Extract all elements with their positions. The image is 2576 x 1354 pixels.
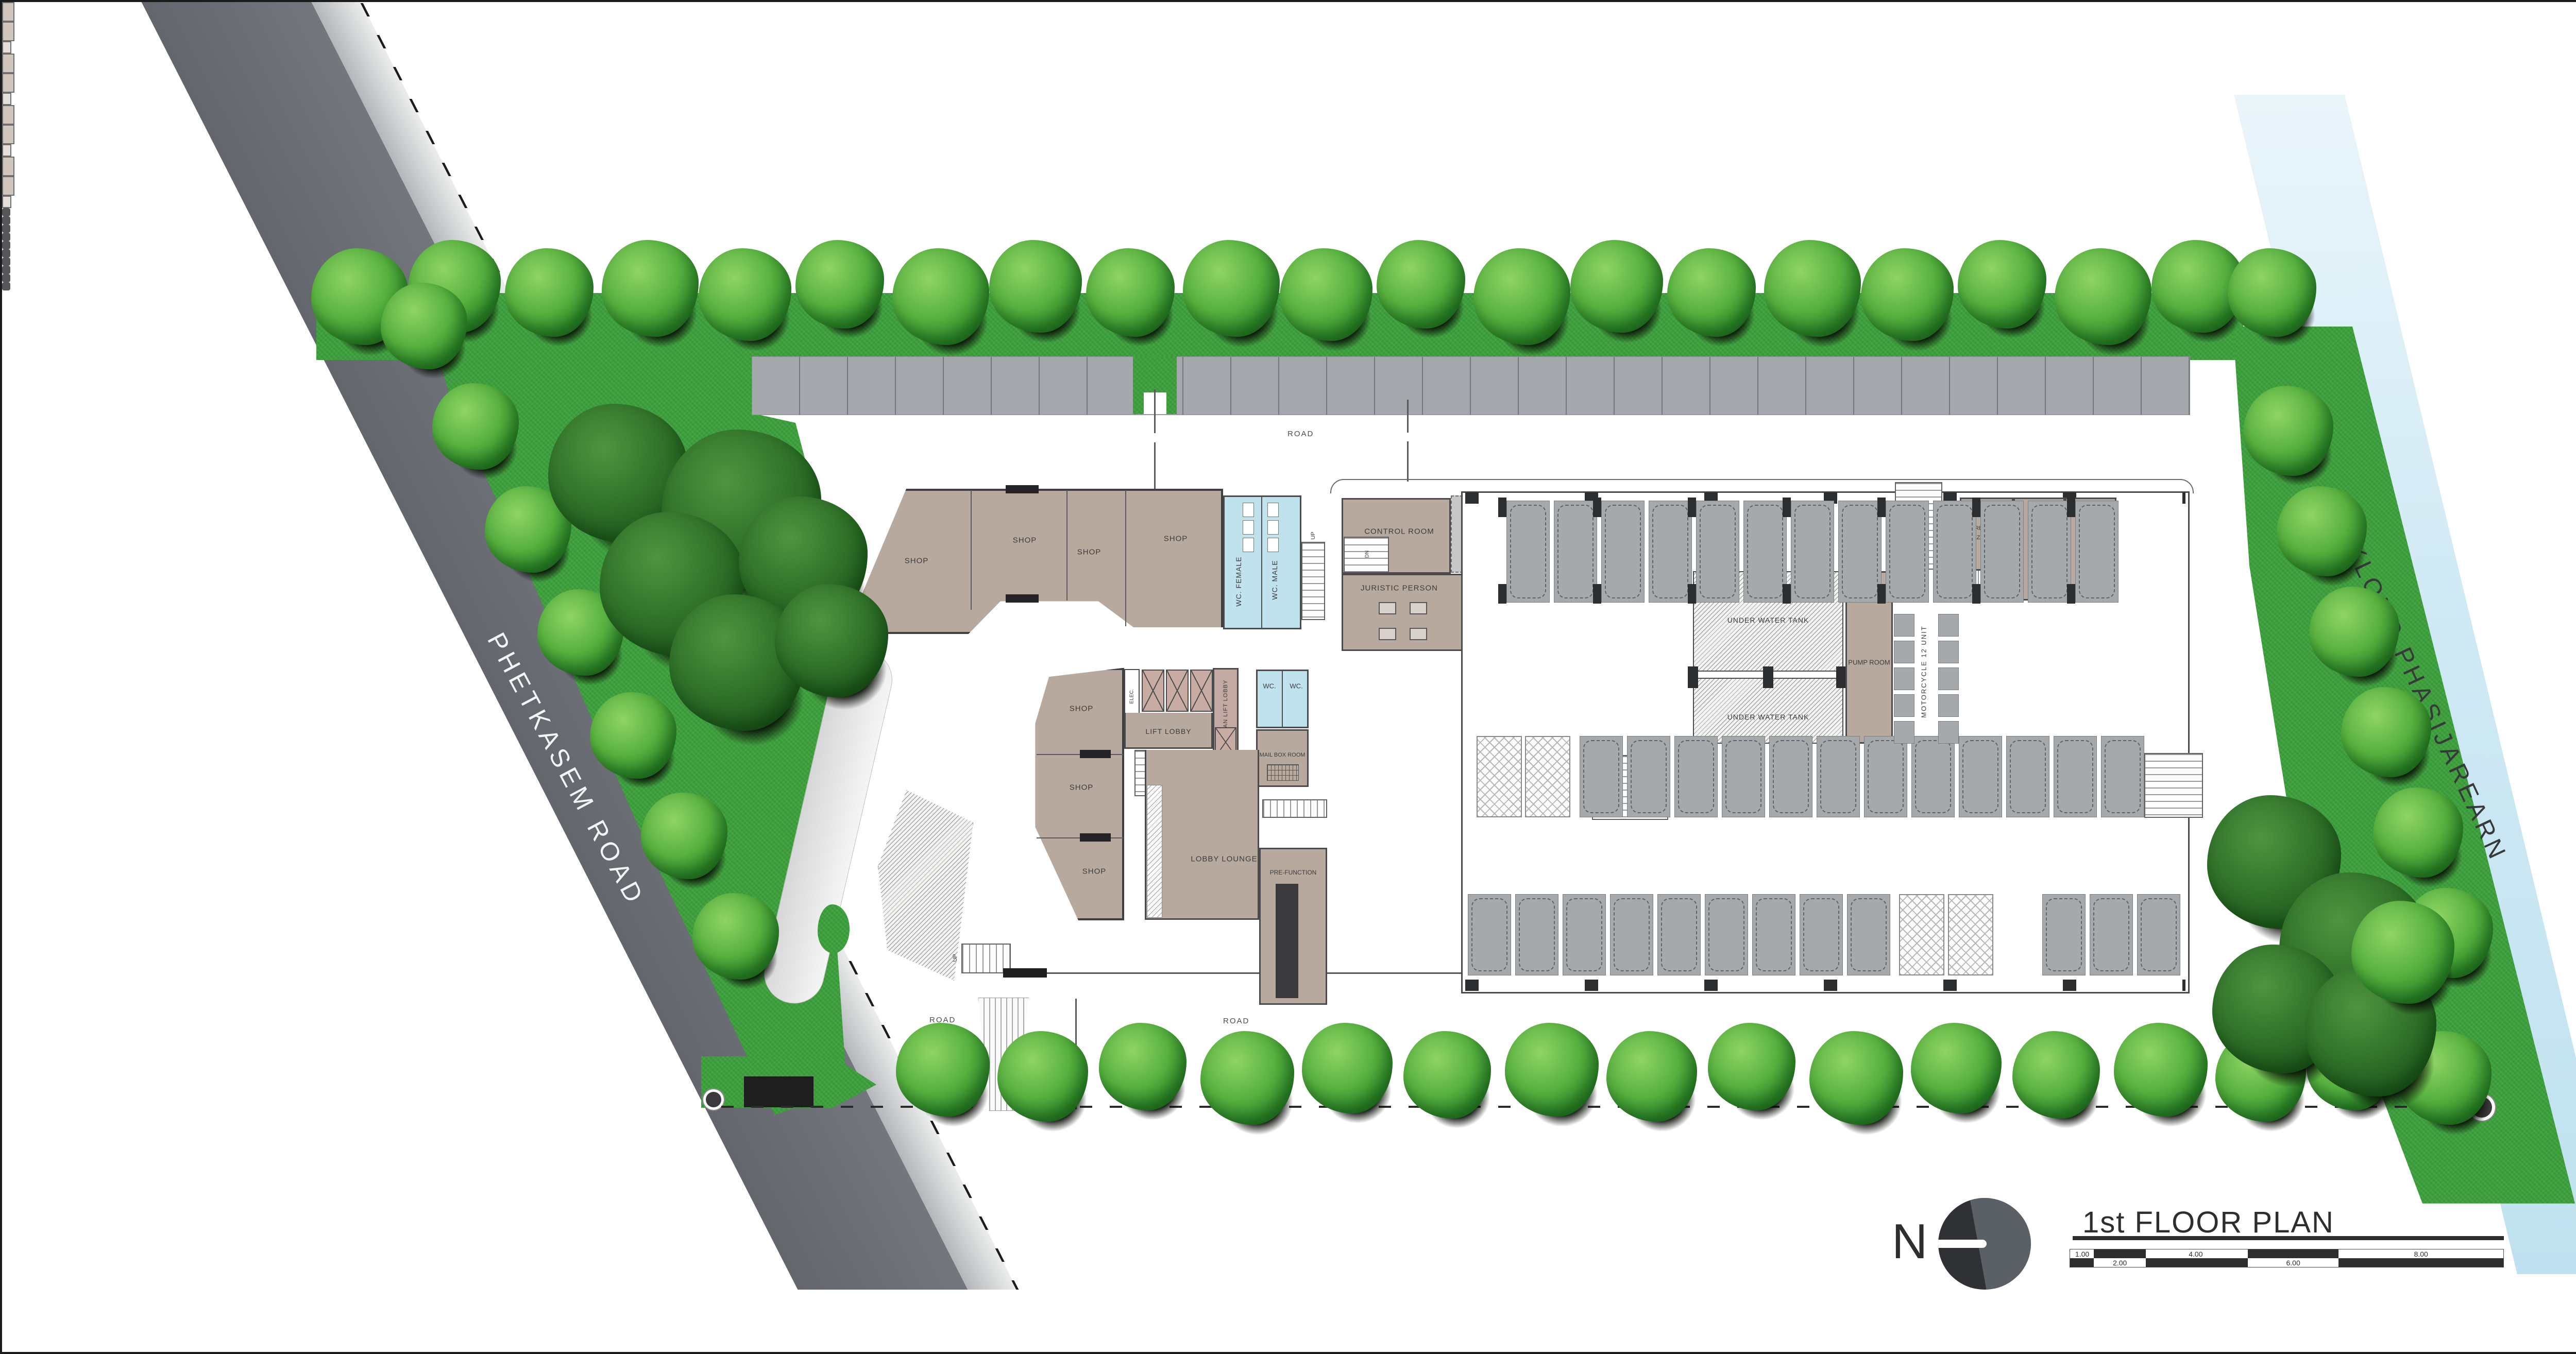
tree — [1280, 248, 1372, 341]
survey-line-a1 — [1154, 389, 1156, 433]
door-threshold — [1006, 485, 1039, 493]
car-outline — [1889, 505, 1925, 598]
lift-lobby-label: LIFT LOBBY — [1145, 727, 1191, 735]
chair — [2, 258, 10, 266]
tree-canopy — [2055, 248, 2151, 345]
parking-stall — [2090, 894, 2133, 975]
car-outline — [1678, 740, 1714, 813]
tree-canopy — [699, 248, 791, 341]
sofa — [2, 73, 14, 93]
tree — [1958, 240, 2046, 329]
parking-stall — [1911, 736, 1955, 817]
tree-canopy — [2277, 486, 2367, 576]
scale-label-4: 4.00 — [2189, 1250, 2202, 1258]
shop-label: SHOP — [1070, 783, 1094, 792]
wc-label: WC. — [1263, 682, 1276, 690]
motorcycle-stall — [1894, 694, 1914, 717]
chair — [2, 225, 10, 233]
tree-canopy — [1861, 248, 1954, 341]
car-outline — [1915, 740, 1951, 813]
parking-stall — [1959, 736, 2002, 817]
car-outline — [1842, 505, 1878, 598]
car-outline — [1803, 898, 1839, 971]
lift-2 — [1166, 670, 1189, 712]
tree — [1403, 1031, 1491, 1119]
wc-fixture — [1267, 520, 1279, 535]
column — [1688, 498, 1696, 517]
sofa — [2, 125, 14, 144]
car-outline — [1605, 505, 1641, 598]
column — [2067, 584, 2075, 604]
tree — [2243, 386, 2333, 476]
entrance-plaza — [878, 790, 973, 981]
column — [1763, 666, 1773, 688]
car-outline — [1566, 898, 1602, 971]
tree-canopy — [2341, 687, 2431, 777]
tree-canopy — [2309, 587, 2399, 677]
tree-canopy — [1377, 240, 1465, 329]
tree — [2373, 787, 2463, 878]
tree — [1667, 248, 1756, 337]
tree — [775, 584, 888, 697]
parking-stall — [2137, 894, 2180, 975]
mail-box-room-label: MAIL BOX ROOM — [1260, 752, 1306, 758]
sofa — [2, 176, 14, 196]
car-outline — [1868, 740, 1904, 813]
parking-stall — [2006, 736, 2049, 817]
tree — [1086, 248, 1175, 337]
parking-stall — [1601, 501, 1645, 603]
column — [1498, 584, 1506, 604]
parking-stall — [1657, 894, 1701, 975]
shop-divider — [971, 490, 972, 610]
wc-fixture — [1267, 538, 1279, 552]
tree — [2277, 486, 2367, 576]
tree — [2351, 901, 2454, 1004]
sofa — [2, 2, 14, 22]
lift-1 — [1142, 670, 1164, 712]
tree-canopy — [1280, 248, 1372, 341]
column — [1593, 584, 1601, 604]
desk — [1410, 602, 1427, 614]
tree — [1183, 240, 1280, 337]
car-outline — [1794, 505, 1831, 598]
scale-label-1: 1.00 — [2075, 1250, 2089, 1258]
scale-seg — [2248, 1249, 2339, 1258]
car-outline — [1471, 898, 1507, 971]
parking-stall — [1933, 501, 1976, 603]
car-outline — [1756, 898, 1792, 971]
car-outline — [2031, 505, 2067, 598]
lobby-lounge-label: LOBBY LOUNGE — [1191, 855, 1257, 864]
car-outline — [1700, 505, 1736, 598]
scale-label-8: 8.00 — [2414, 1250, 2428, 1258]
car-outline — [2046, 898, 2082, 971]
floor-plan-canvas: UP SHOP SHOP SHOP SHOP WC. FEMALE WC. MA… — [0, 0, 2576, 1354]
shop-label: SHOP — [1013, 536, 1037, 545]
shop-label: SHOP — [1070, 705, 1094, 713]
tree — [590, 692, 676, 779]
column — [2067, 498, 2075, 517]
door-threshold — [1006, 594, 1039, 603]
tree — [1377, 240, 1465, 329]
tree — [699, 248, 791, 341]
car-outline — [1937, 505, 1973, 598]
motorcycle-stall — [1894, 721, 1914, 744]
car-outline — [1652, 505, 1688, 598]
sofa — [2, 105, 14, 125]
tree — [2341, 687, 2431, 777]
tree-canopy — [1809, 1031, 1903, 1125]
tree-canopy — [1086, 248, 1175, 337]
tree-canopy — [590, 692, 676, 779]
parking-stall — [1722, 736, 1765, 817]
wc-label: WC. — [1290, 682, 1302, 690]
tree — [1302, 1023, 1393, 1113]
car-outline — [2141, 898, 2177, 971]
tree — [1505, 1023, 1599, 1117]
garage-column-band-bottom — [1465, 980, 2185, 991]
canopy-line — [1047, 972, 1462, 974]
tree — [1473, 248, 1570, 345]
tree-canopy — [1099, 1023, 1187, 1110]
coffee-table — [2, 41, 11, 54]
canopy-block — [1003, 968, 1047, 978]
scale-seg — [2094, 1249, 2146, 1258]
chair — [2, 241, 10, 249]
shop-label: SHOP — [1164, 535, 1188, 543]
column — [1688, 666, 1698, 688]
parking-stall — [1627, 736, 1670, 817]
tree-canopy — [1708, 1023, 1795, 1110]
coffee-table — [2, 196, 11, 208]
motorcycle-stall — [1938, 641, 1959, 663]
column — [1877, 584, 1886, 604]
parking-stall — [2054, 736, 2097, 817]
control-room-label: CONTROL ROOM — [1364, 527, 1434, 536]
parking-stall — [2042, 894, 2086, 975]
tree-canopy — [2243, 386, 2333, 476]
parking-stall — [1791, 501, 1834, 603]
scale-seg — [2070, 1258, 2094, 1267]
car-outline — [2079, 505, 2115, 598]
tree-canopy — [2228, 248, 2316, 337]
tree — [1861, 248, 1954, 341]
tree-canopy — [1667, 248, 1756, 337]
column — [1688, 584, 1696, 604]
desk — [1379, 628, 1396, 640]
survey-line-b2 — [1407, 441, 1409, 482]
wc-fixture — [1267, 503, 1279, 517]
parking-stall — [1769, 736, 1812, 817]
tree-canopy — [2373, 787, 2463, 878]
parking-stall — [1886, 501, 1929, 603]
car-outline — [1519, 898, 1555, 971]
tree-canopy — [1505, 1023, 1599, 1117]
wc-fixture — [1243, 520, 1254, 535]
scale-seg — [2146, 1258, 2248, 1267]
tree — [381, 283, 467, 369]
parking-stall — [1705, 894, 1748, 975]
tree-canopy — [1403, 1031, 1491, 1119]
motorcycle-stall — [1894, 667, 1914, 690]
ramp-chevron — [1525, 736, 1570, 817]
parking-stall — [1838, 501, 1882, 603]
tree — [2309, 587, 2399, 677]
tree-canopy — [1570, 240, 1663, 333]
parking-stall — [1563, 894, 1606, 975]
car-outline — [1661, 898, 1697, 971]
desk — [1410, 628, 1427, 640]
column — [1498, 498, 1506, 517]
tree — [1606, 1031, 1697, 1122]
side-stair — [1262, 799, 1327, 818]
tree-canopy — [1473, 248, 1570, 345]
parking-stall — [2101, 736, 2144, 817]
sofa — [2, 22, 14, 41]
chair — [2, 233, 10, 241]
front-stair-up-label: UP — [1310, 532, 1316, 539]
shop-label: SHOP — [905, 557, 929, 565]
parking-stall — [2075, 501, 2119, 603]
chair — [2, 282, 10, 290]
column — [1783, 584, 1791, 604]
small-bush — [818, 904, 850, 953]
tree-canopy — [432, 383, 519, 470]
ramp-chevron — [1477, 736, 1522, 817]
plan-title: 1st FLOOR PLAN — [2082, 1205, 2334, 1240]
tree — [997, 1031, 1088, 1122]
parking-stall — [1610, 894, 1653, 975]
tree-canopy — [892, 248, 989, 345]
tree-canopy — [2012, 1031, 2100, 1119]
coffee-table — [2, 144, 11, 157]
car-outline — [1631, 740, 1667, 813]
title-underline — [2073, 1236, 2504, 1240]
under-water-tank-label: UNDER WATER TANK — [1727, 713, 1809, 721]
tree — [896, 1023, 990, 1117]
motorcycle-stall — [1938, 721, 1959, 744]
tree — [692, 893, 779, 980]
wc-male-label: WC. MALE — [1270, 560, 1279, 599]
tree-canopy — [1764, 240, 1861, 337]
tree — [432, 383, 519, 470]
road-label-top: ROAD — [1287, 430, 1314, 438]
parking-stall — [2028, 501, 2071, 603]
car-outline — [1851, 898, 1887, 971]
parking-stall — [1743, 501, 1787, 603]
under-water-tank-label: UNDER WATER TANK — [1727, 616, 1809, 624]
boundary-post-left — [706, 1092, 721, 1107]
wc-fixture — [1243, 538, 1254, 552]
lounge-walk-hatch — [1147, 785, 1162, 918]
motorcycle-stall — [1894, 641, 1914, 663]
parking-stall — [1674, 736, 1718, 817]
wc-divider — [1261, 496, 1262, 628]
pump-room-label: PUMP ROOM — [1848, 659, 1890, 666]
car-outline — [1820, 740, 1856, 813]
tree-canopy — [2351, 901, 2454, 1004]
tree-canopy — [1606, 1031, 1697, 1122]
survey-line-b1 — [1407, 400, 1409, 433]
tree-canopy — [896, 1023, 990, 1117]
motorcycle-stall — [1894, 614, 1914, 637]
car-outline — [1962, 740, 1998, 813]
column — [1836, 666, 1846, 688]
parking-stall — [1580, 736, 1623, 817]
tree — [892, 248, 989, 345]
car-outline — [1747, 505, 1783, 598]
column — [1877, 498, 1886, 517]
parking-stall — [1649, 501, 1692, 603]
tree — [602, 240, 699, 337]
wc-divider — [1282, 671, 1283, 727]
north-letter: N — [1892, 1213, 1927, 1270]
tree-canopy — [1200, 1031, 1294, 1125]
tree-canopy — [775, 584, 888, 697]
conference-table — [1276, 884, 1298, 998]
garage-stair-right — [2144, 753, 2203, 818]
shop-divider — [1125, 490, 1126, 626]
car-outline — [1557, 505, 1594, 598]
wc-fixture — [1243, 503, 1254, 517]
tree-canopy — [795, 240, 884, 329]
column — [1972, 584, 1980, 604]
tree — [2012, 1031, 2100, 1119]
tree — [505, 248, 594, 337]
car-outline — [1510, 505, 1546, 598]
car-outline — [1583, 740, 1619, 813]
scale-seg — [2338, 1258, 2503, 1267]
elec-label: ELEC. — [1129, 689, 1135, 704]
scale-label-6: 6.00 — [2286, 1259, 2300, 1267]
car-outline — [1725, 740, 1761, 813]
tree-canopy — [505, 248, 594, 337]
shop-label: SHOP — [1082, 867, 1107, 876]
tree — [1200, 1031, 1294, 1125]
column — [1783, 498, 1791, 517]
tree-canopy — [1911, 1023, 2002, 1113]
mail-boxes — [1267, 764, 1299, 781]
tree-canopy — [997, 1031, 1088, 1122]
wc-female-label: WC. FEMALE — [1234, 556, 1243, 606]
car-outline — [1708, 898, 1744, 971]
tree — [2055, 248, 2151, 345]
tree-canopy — [381, 283, 467, 369]
tree-canopy — [989, 240, 1082, 333]
scale-bar: 1.00 2.00 4.00 6.00 8.00 — [2070, 1249, 2504, 1267]
tree — [641, 793, 727, 879]
ramp-chevron — [1899, 894, 1944, 975]
car-outline — [1773, 740, 1809, 813]
shop-block-top — [842, 489, 1223, 634]
motorcycle-stall — [1938, 667, 1959, 690]
ramp-chevron — [1948, 894, 1993, 975]
tree — [795, 240, 884, 329]
car-outline — [2093, 898, 2129, 971]
coffee-table — [2, 93, 11, 105]
tree — [1911, 1023, 2002, 1113]
column — [1972, 498, 1980, 517]
parking-stall — [1980, 501, 2024, 603]
tree — [1099, 1023, 1187, 1110]
road-label-bottom-right: ROAD — [1223, 1017, 1249, 1025]
tree-canopy — [2114, 1023, 2208, 1117]
lift-3 — [1190, 670, 1213, 712]
tree — [1809, 1031, 1903, 1125]
sofa — [2, 157, 14, 176]
parking-stall — [1847, 894, 1890, 975]
car-outline — [1984, 505, 2020, 598]
chair — [2, 274, 10, 282]
tree — [1764, 240, 1861, 337]
north-compass-icon — [1938, 1198, 2031, 1290]
sofa — [2, 54, 14, 73]
parking-stall — [1554, 501, 1597, 603]
car-outline — [2010, 740, 2046, 813]
motorcycle-label: MOTORCYCLE 12 UNIT — [1920, 625, 1928, 718]
control-stair-dn-label: DN — [1365, 551, 1370, 558]
car-outline — [2105, 740, 2141, 813]
tree-canopy — [692, 893, 779, 980]
car-outline — [2057, 740, 2093, 813]
door-threshold — [1080, 750, 1111, 758]
motorcycle-stall — [1938, 614, 1959, 637]
parking-stall — [1817, 736, 1860, 817]
tree — [989, 240, 1082, 333]
door-threshold — [1080, 833, 1111, 842]
pre-function-label: PRE-FUNCTION — [1270, 869, 1317, 876]
parking-stall — [1506, 501, 1550, 603]
parking-stall — [1468, 894, 1511, 975]
parking-stall — [1800, 894, 1843, 975]
tree — [2228, 248, 2316, 337]
tree-canopy — [1958, 240, 2046, 329]
shop-divider — [1066, 490, 1067, 601]
juristic-person-label: JURISTIC PERSON — [1361, 584, 1438, 593]
motorcycle-stall — [1938, 694, 1959, 717]
chair — [2, 266, 10, 274]
scale-label-2: 2.00 — [2113, 1259, 2127, 1267]
parking-stall — [1752, 894, 1795, 975]
compass-notch — [1938, 1240, 1987, 1248]
desk — [1379, 602, 1396, 614]
parking-stall — [1864, 736, 1907, 817]
chair — [2, 208, 10, 216]
tree — [1570, 240, 1663, 333]
parking-stall — [1515, 894, 1558, 975]
tree-canopy — [1302, 1023, 1393, 1113]
tree — [2114, 1023, 2208, 1117]
column — [1593, 498, 1601, 517]
tree — [1708, 1023, 1795, 1110]
tree-canopy — [602, 240, 699, 337]
entry-sign — [744, 1076, 814, 1107]
outdoor-stair-up-label: UP — [952, 954, 958, 962]
car-outline — [1614, 898, 1650, 971]
tree-canopy — [641, 793, 727, 879]
street-parking-strip — [752, 356, 2190, 415]
tree-canopy — [1183, 240, 1280, 337]
parking-stall — [1696, 501, 1739, 603]
chair — [2, 249, 10, 258]
chair — [2, 216, 10, 225]
shop-label: SHOP — [1077, 548, 1101, 557]
front-stair — [1301, 542, 1325, 620]
